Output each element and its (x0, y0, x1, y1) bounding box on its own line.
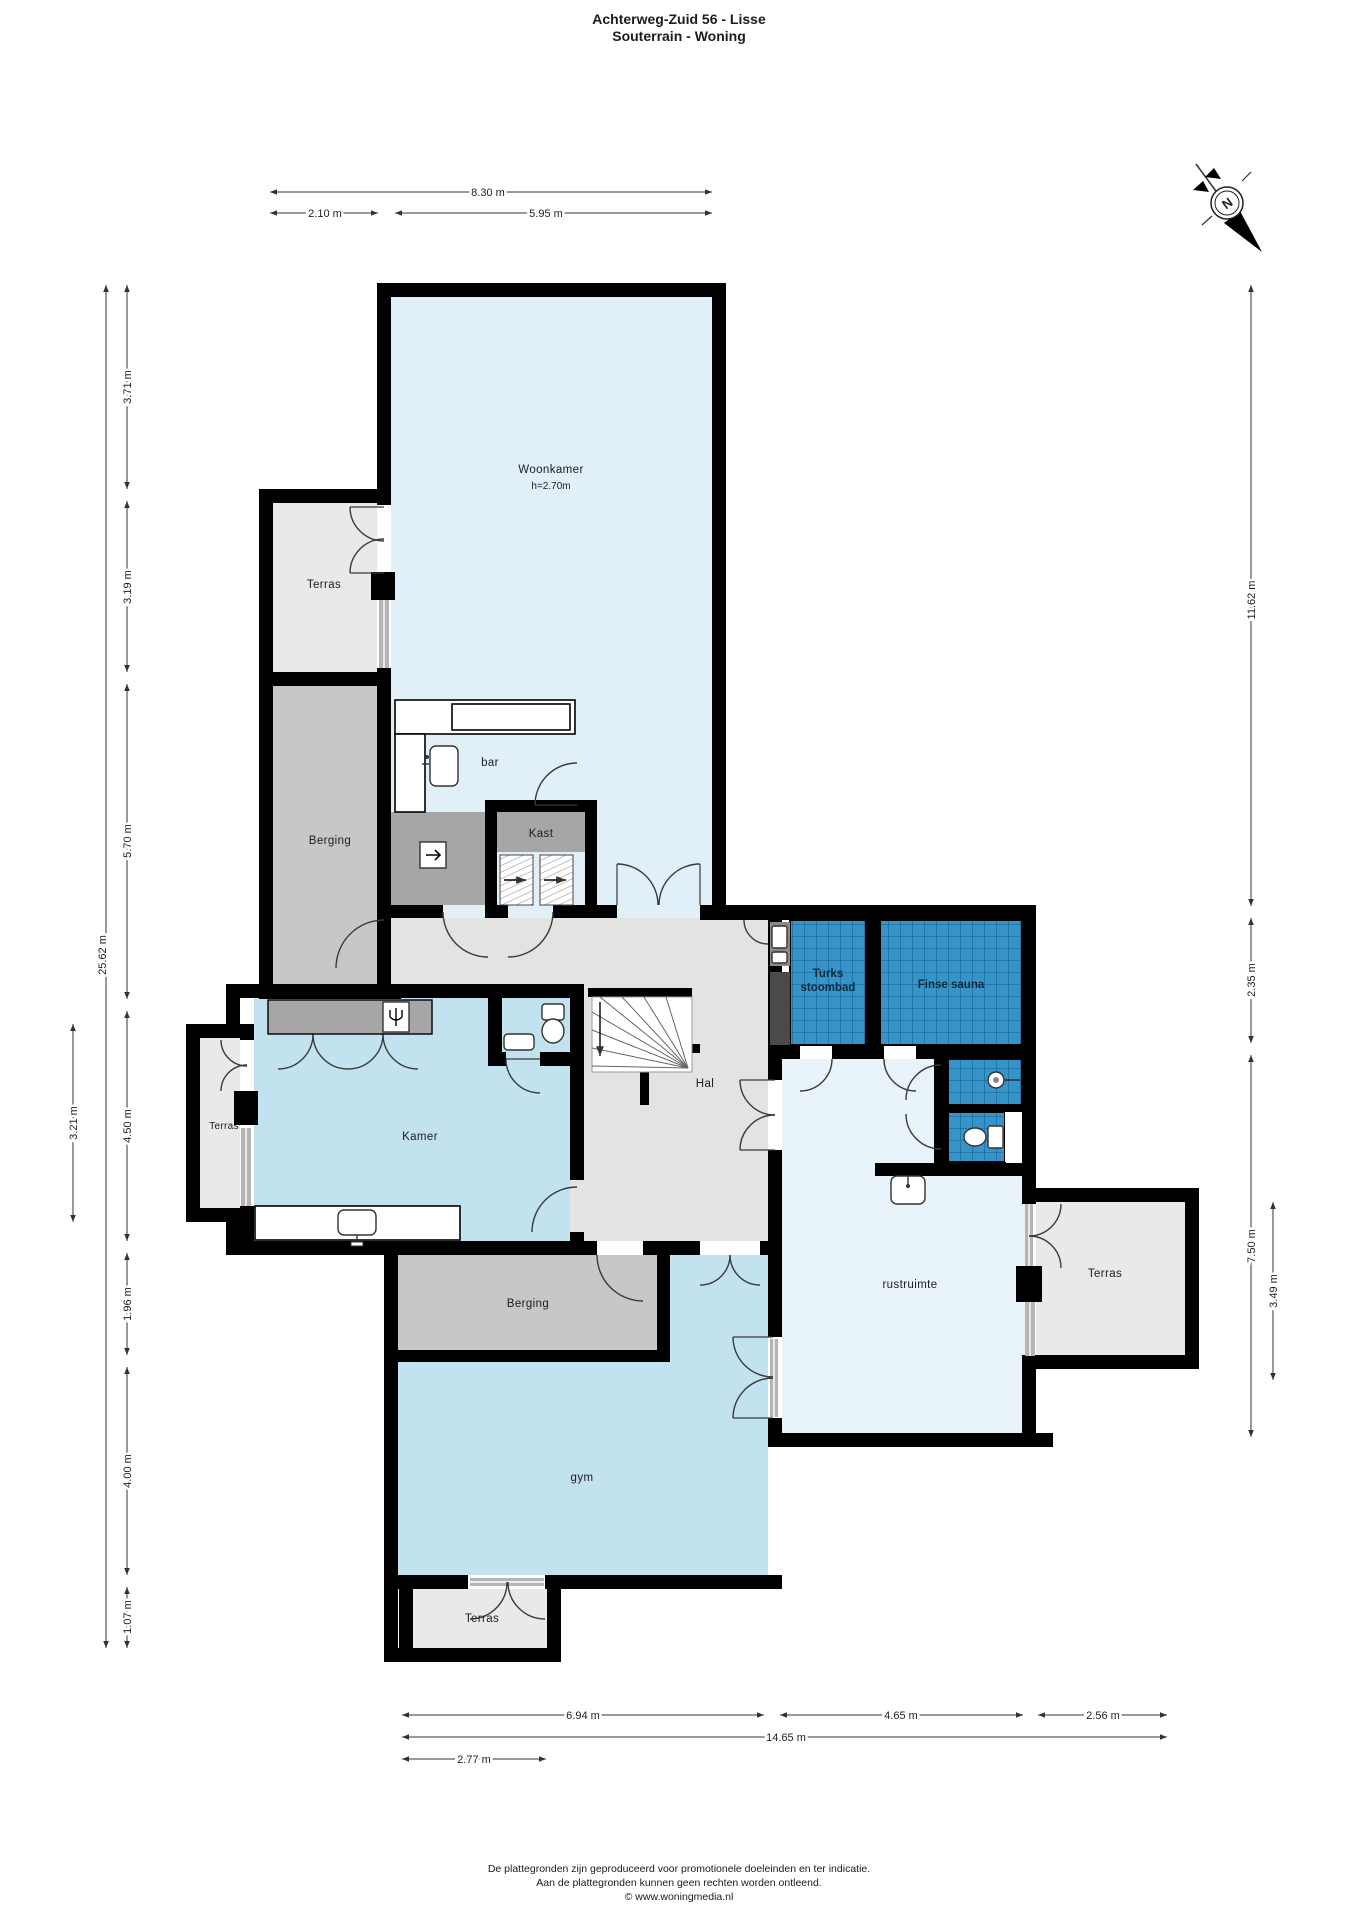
label-terras-top: Terras (307, 579, 341, 591)
ensuite-toilet-tank-icon (542, 1004, 564, 1020)
bar-sink-icon (430, 746, 458, 786)
kamer-sink-icon (338, 1210, 376, 1235)
ensuite-sink-icon (504, 1034, 534, 1050)
dimensions-bottom: 6.94 m 4.65 m 2.56 m 14.65 m 2.77 m (402, 1710, 1167, 1766)
footer-line1: De plattegronden zijn geproduceerd voor … (488, 1863, 870, 1875)
dim-left-2562: 25.62 m (97, 935, 109, 975)
label-woonkamer: Woonkamer (518, 464, 583, 476)
niche-fixture-icon (772, 926, 787, 948)
dim-bottom-1465: 14.65 m (766, 1732, 806, 1744)
footer: De plattegronden zijn geproduceerd voor … (488, 1863, 870, 1903)
label-terras-bottom: Terras (465, 1613, 499, 1625)
footer-line3: © www.woningmedia.nl (625, 1891, 734, 1903)
dim-bottom-465: 4.65 m (884, 1710, 918, 1722)
toilet-niche (1005, 1112, 1022, 1162)
dim-top-595: 5.95 m (529, 208, 563, 220)
room-rustruimte (782, 1176, 1025, 1433)
ensuite-toilet-bowl-icon (542, 1019, 564, 1043)
footer-line2: Aan de plattegronden kunnen geen rechten… (536, 1877, 821, 1889)
dim-left-107: 1.07 m (122, 1600, 134, 1634)
dimensions-left: 25.62 m 3.71 m 3.19 m 5.70 m 4.50 m 1.96… (68, 285, 134, 1648)
floorplan-canvas: Achterweg-Zuid 56 - Lisse Souterrain - W… (0, 0, 1358, 1920)
room-rustruimte-link (782, 1163, 875, 1176)
label-berging-top: Berging (309, 835, 351, 847)
dimensions-top: 8.30 m 2.10 m 5.95 m (270, 187, 712, 220)
dim-left-319: 3.19 m (122, 570, 134, 604)
dim-bottom-694: 6.94 m (566, 1710, 600, 1722)
wc-bowl-icon (964, 1128, 986, 1146)
room-shower (948, 1059, 1022, 1105)
dim-left-400: 4.00 m (122, 1454, 134, 1488)
page-title-line1: Achterweg-Zuid 56 - Lisse (592, 11, 766, 27)
label-gym: gym (571, 1472, 594, 1484)
glass-door-terras-right (1025, 1204, 1033, 1266)
dim-right-1162: 11.62 m (1246, 581, 1258, 620)
label-terras-right: Terras (1088, 1268, 1122, 1280)
label-turks-line1: Turks (813, 968, 843, 980)
dim-left-196: 1.96 m (122, 1287, 134, 1321)
niche-dark (770, 972, 790, 1045)
room-corridor (391, 918, 768, 984)
dim-right-235: 2.35 m (1246, 963, 1258, 997)
label-finse-sauna: Finse sauna (918, 979, 985, 991)
bar-counter-return (395, 734, 425, 812)
dim-left-321: 3.21 m (68, 1106, 80, 1140)
window-woonkamer-left (379, 600, 389, 668)
window-terras-left (241, 1128, 251, 1206)
label-berging-mid: Berging (507, 1298, 549, 1310)
floorplan-page: Achterweg-Zuid 56 - Lisse Souterrain - W… (0, 0, 1358, 1920)
dim-top-210: 2.10 m (308, 208, 342, 220)
label-kast: Kast (529, 828, 554, 840)
niche-fixture2-icon (772, 952, 787, 963)
label-rustruimte: rustruimte (882, 1279, 937, 1291)
compass-icon: N (1193, 164, 1262, 252)
dim-left-570: 5.70 m (122, 824, 134, 858)
dim-right-750: 7.50 m (1246, 1229, 1258, 1263)
stairs-main (592, 997, 692, 1072)
label-woonkamer-height: h=2.70m (531, 481, 570, 492)
dimensions-right: 11.62 m 2.35 m 7.50 m 3.49 m (1246, 285, 1280, 1437)
room-rustruimte-vestibule (782, 1059, 934, 1163)
dim-left-450: 4.50 m (122, 1109, 134, 1143)
room-gym-upper (670, 1255, 768, 1365)
label-bar: bar (481, 757, 499, 769)
dim-bottom-277: 2.77 m (457, 1754, 491, 1766)
bar-counter-shelf (452, 704, 570, 730)
page-title-line2: Souterrain - Woning (612, 28, 746, 44)
dim-right-349: 3.49 m (1268, 1274, 1280, 1308)
dim-bottom-256: 2.56 m (1086, 1710, 1120, 1722)
window-rustruimte-right (1025, 1302, 1035, 1356)
label-turks-line2: stoombad (801, 982, 856, 994)
dim-left-371: 3.71 m (122, 370, 134, 404)
wc-tank-icon (988, 1126, 1003, 1148)
label-hal: Hal (696, 1078, 714, 1090)
room-gym (398, 1362, 768, 1575)
label-terras-left: Terras (209, 1121, 239, 1132)
dim-top-830: 8.30 m (471, 187, 505, 199)
label-kamer: Kamer (402, 1131, 438, 1143)
